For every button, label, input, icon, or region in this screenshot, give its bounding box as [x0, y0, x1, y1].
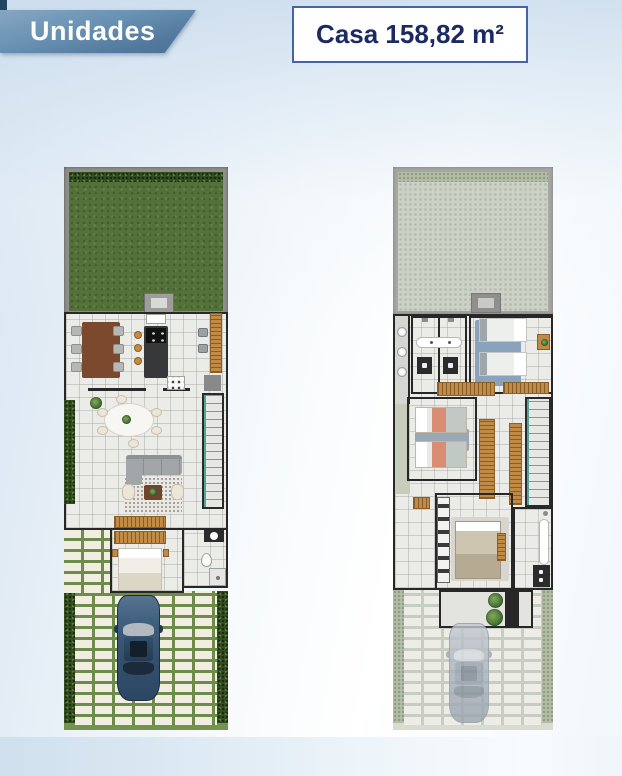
desk-plant	[541, 339, 548, 346]
shower-head	[543, 511, 548, 516]
dining-chair	[71, 326, 82, 336]
cabinet-door	[539, 570, 543, 574]
driveway-hedge-left	[64, 591, 75, 723]
bath-counter	[539, 519, 549, 565]
sofa	[126, 455, 182, 475]
wardrobe	[503, 382, 549, 394]
single-bed-coral	[415, 441, 467, 468]
balcony-plant	[488, 593, 503, 608]
bar-stool	[198, 344, 208, 353]
bed	[118, 548, 162, 591]
bath-vanity	[443, 357, 458, 374]
ceiling-light	[397, 347, 407, 357]
ghost-lawn	[398, 172, 548, 311]
nightstand	[112, 549, 118, 557]
cabinet-door	[539, 578, 543, 582]
shelving	[437, 497, 450, 583]
armchair	[171, 484, 184, 500]
backyard-lawn	[69, 172, 223, 311]
nightstand	[163, 549, 169, 557]
cabinet	[204, 375, 221, 391]
dining-chair	[113, 362, 124, 372]
armchair	[122, 484, 135, 500]
side-garden	[64, 400, 75, 504]
balcony-pillar	[505, 590, 519, 628]
staircase	[202, 393, 224, 509]
toilet	[201, 553, 212, 567]
car-rear-window	[454, 686, 484, 698]
section-ribbon: Unidades	[0, 10, 196, 53]
shower-head	[422, 318, 428, 322]
kitchen-sink	[146, 314, 166, 324]
car-sunroof	[130, 641, 147, 657]
wardrobe	[437, 382, 495, 396]
terrace-chair	[151, 426, 162, 435]
bar-counter	[210, 313, 222, 373]
barbecue	[144, 293, 174, 313]
coffee-table-plant	[149, 488, 157, 496]
car-windshield	[454, 649, 484, 661]
single-bed	[479, 352, 527, 376]
terrace-chair	[97, 426, 108, 435]
staircase-upper	[525, 397, 551, 507]
terrace-chair	[116, 395, 127, 404]
car-windshield	[123, 623, 154, 636]
half-wall	[88, 388, 146, 391]
ghost-car	[449, 623, 489, 723]
shower	[209, 568, 226, 586]
single-bed	[479, 318, 527, 342]
ceiling-light	[397, 367, 407, 377]
bath-cabinet	[533, 565, 550, 587]
faucet	[430, 341, 433, 344]
counter-appliance	[167, 376, 185, 390]
island-stool	[134, 357, 142, 365]
master-bed	[455, 521, 501, 579]
dining-chair	[113, 344, 124, 354]
ghost-hedge-left	[393, 590, 404, 723]
vanity-door	[448, 363, 453, 368]
page-title: Unidades	[30, 16, 156, 47]
side-path-pavers	[64, 530, 110, 593]
island-stool	[134, 331, 142, 339]
bar-stool	[198, 328, 208, 337]
bathroom-vanity	[204, 530, 224, 542]
vanity-door	[422, 363, 427, 368]
double-sink-counter	[416, 337, 462, 348]
tv-console	[114, 516, 166, 528]
pillow	[460, 523, 477, 529]
unit-area-label: Casa 158,82 m²	[316, 19, 504, 50]
ghost-barbecue-top	[478, 298, 494, 308]
pillow	[480, 523, 497, 529]
bath-vanity	[417, 357, 432, 374]
backyard-hedge	[69, 172, 223, 182]
closet-rack	[479, 419, 495, 499]
car	[117, 595, 160, 701]
ghost-hedge-top	[398, 172, 548, 182]
driveway-hedge-right	[217, 591, 228, 723]
faucet	[448, 341, 451, 344]
dining-chair	[71, 362, 82, 372]
potted-plant	[90, 397, 102, 409]
dining-chair	[71, 344, 82, 354]
stove	[146, 328, 166, 343]
shower-drain	[216, 576, 220, 580]
wardrobe	[114, 531, 166, 544]
slide: Unidades Casa 158,82 m²	[0, 0, 622, 776]
footer-band	[0, 737, 622, 776]
terrace-chair	[97, 408, 108, 417]
bench	[497, 533, 506, 561]
dining-chair	[113, 326, 124, 336]
barbecue-top	[151, 298, 167, 308]
car-rear-window	[123, 662, 154, 675]
terrace-chair	[151, 408, 162, 417]
ghost-barbecue	[471, 293, 501, 313]
upper-floor-plan	[393, 167, 553, 730]
car-sunroof	[461, 666, 477, 681]
single-bed-coral	[415, 407, 467, 433]
desk	[537, 334, 550, 350]
ceiling-light	[397, 327, 407, 337]
basin	[210, 532, 218, 540]
ground-floor-plan	[64, 167, 228, 730]
terrace-chair	[128, 439, 139, 448]
unit-area-box: Casa 158,82 m²	[292, 6, 528, 63]
ghost-hedge-right	[542, 590, 553, 723]
island-stool	[134, 344, 142, 352]
section-ribbon-shape: Unidades	[0, 10, 196, 53]
dresser	[413, 497, 430, 509]
shower-head	[448, 318, 454, 322]
table-plant	[122, 415, 131, 424]
